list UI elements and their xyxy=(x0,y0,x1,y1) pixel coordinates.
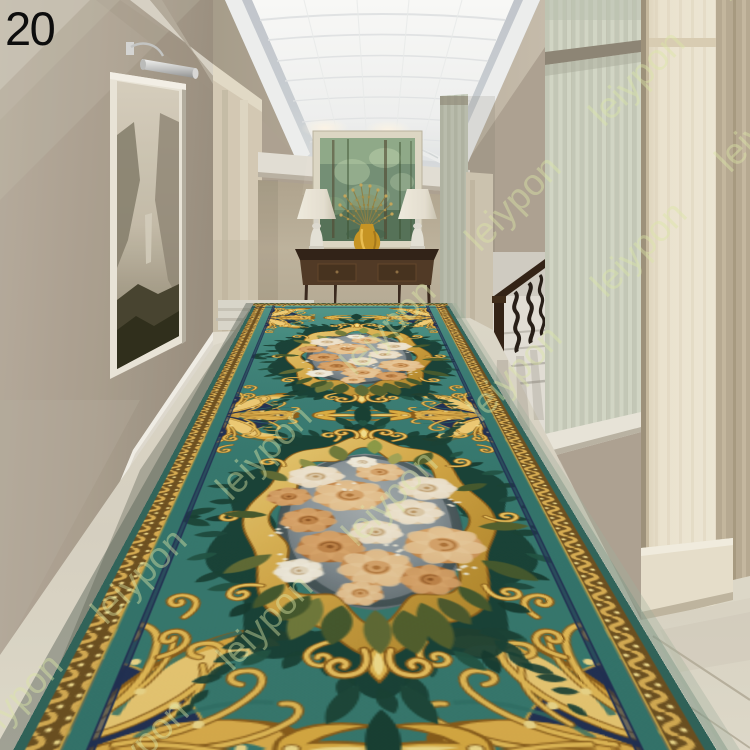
svg-text:leiypon: leiypon xyxy=(332,271,444,383)
svg-text:leiypon: leiypon xyxy=(208,396,320,508)
svg-text:leiypon: leiypon xyxy=(581,22,693,134)
svg-text:leiypon: leiypon xyxy=(457,147,569,259)
svg-text:leiypon: leiypon xyxy=(334,442,446,554)
svg-text:leiypon: leiypon xyxy=(85,691,197,750)
svg-text:leiypon: leiypon xyxy=(706,0,750,9)
svg-text:leiypon: leiypon xyxy=(707,68,750,180)
svg-text:leiypon: leiypon xyxy=(83,520,195,632)
svg-text:leiypon: leiypon xyxy=(458,317,570,429)
svg-text:leiypon: leiypon xyxy=(209,566,321,678)
svg-text:leiypon: leiypon xyxy=(0,645,71,750)
svg-text:leiypon: leiypon xyxy=(583,193,695,305)
